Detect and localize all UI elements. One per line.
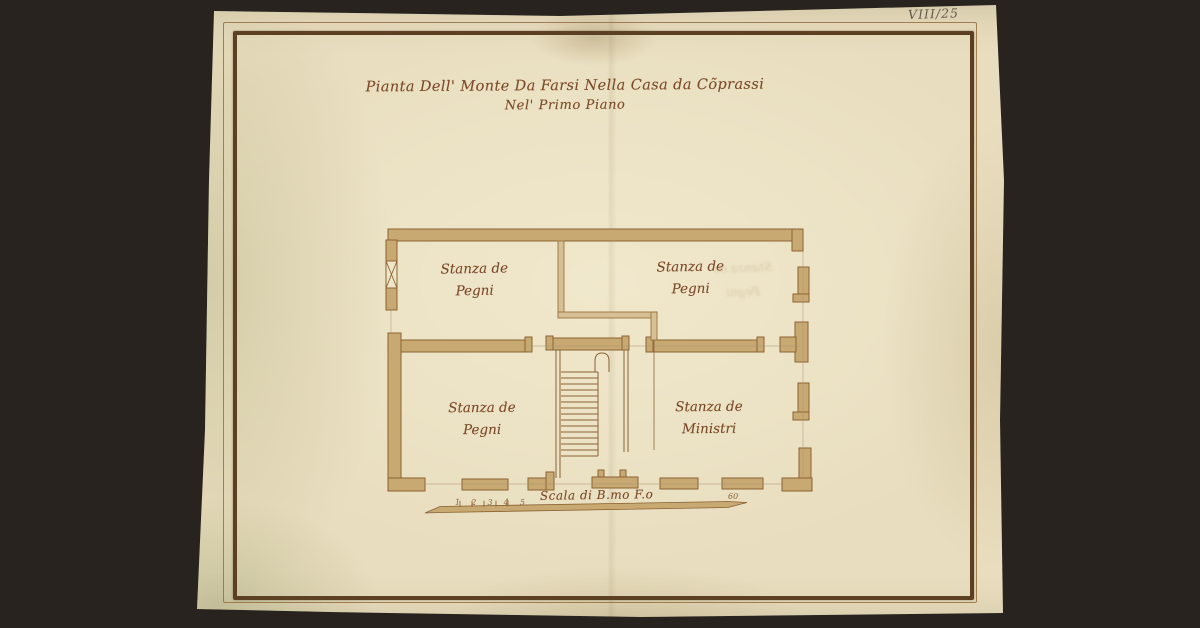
scan-background: VIII/25 Pianta Dell' Monte Da Farsi Nell… [0,0,1200,628]
wall-top-right-stub [792,229,803,251]
room-label-line2: Pegni [418,418,546,441]
wall-bottom-seg-4 [722,478,763,489]
wall-left-upper-a [386,240,397,261]
scale-label: Scala di B.mo F.o [540,487,660,503]
stairwell-right-wall [624,350,628,452]
room-label-lower-left: Stanza de Pegni [418,396,546,441]
archive-number: VIII/25 [908,5,968,22]
wall-bottom-stub-b [620,470,626,477]
wall-left-upper-b [386,288,397,310]
wall-bottom-under-stair [592,477,638,488]
manuscript-page: VIII/25 Pianta Dell' Monte Da Farsi Nell… [0,0,1200,628]
stairwell-beam [548,338,628,350]
scale-end-value: 60 [728,492,738,501]
wall-mid-left-jamb [525,337,532,352]
stair-treads [561,372,598,456]
wall-top [388,229,792,241]
scale-tick: 1 [455,498,460,507]
wall-bottom-seg-3 [660,478,698,489]
wall-bottom-seg-1 [462,479,508,490]
scale-tick: 2 [471,498,476,507]
room-label-lower-right: Stanza de Ministri [645,395,773,440]
plan-title-line1: Pianta Dell' Monte Da Farsi Nella Casa d… [365,77,765,96]
plan-title-line2: Nel' Primo Piano [365,97,765,115]
wall-mid-left [401,340,527,352]
plan-title: Pianta Dell' Monte Da Farsi Nella Casa d… [365,77,765,115]
wall-mid-right-jamb-right [757,337,764,352]
pillar-right-1-foot [793,294,809,302]
staircase [556,340,654,478]
pillar-right-mid-arm [780,337,796,352]
scale-tick: 3 [487,498,492,507]
wall-bottom-left-corner [388,478,425,491]
stairwell-beam-jamb-right [622,336,629,350]
scale-tick: 5 [520,498,525,507]
pillar-right-mid [795,322,808,362]
wall-left-lower [388,333,401,478]
room-label-line1: Stanza de [418,396,546,419]
wall-bottom-right-corner [782,478,812,491]
room-label-line1: Stanza de [412,257,537,281]
room-label-line2: Ministri [645,417,773,440]
window-x-box [386,261,397,288]
room-label-upper-left: Stanza de Pegni [412,257,538,303]
wall-bottom-seg-2-jamb [546,472,554,490]
stairwell-beam-jamb-left [546,336,553,350]
scale-tick: 4 [504,498,509,507]
stair-rail-curl [595,353,609,372]
stairwell-left-wall [556,350,560,478]
wall-bottom-stub-a [598,470,604,477]
room-label-line1: Stanza de [645,395,773,418]
bleed-through-text: Stanza de Pegni [694,254,791,305]
scale-tick-numbers: 1 2 3 4 5 [455,498,525,507]
pillar-right-2-foot [793,412,809,420]
room-label-line2: Pegni [412,279,537,303]
